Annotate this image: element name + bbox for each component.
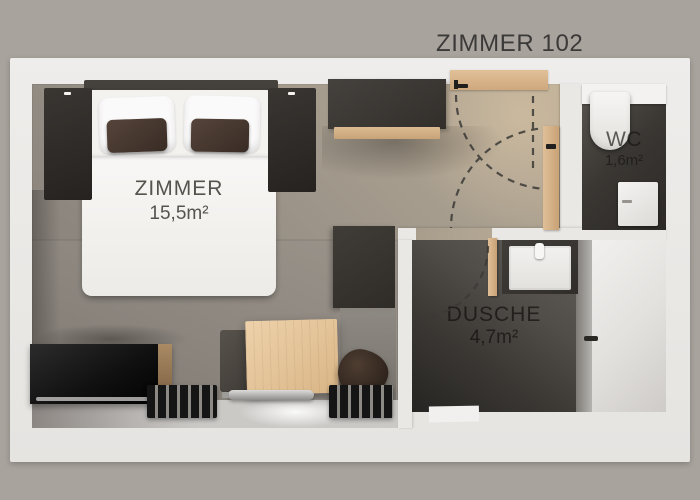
wc-cabinet [618,182,658,226]
door-handle-icon [546,144,556,149]
accent-cushion [106,118,167,153]
wall-shower-left [398,240,412,428]
shower-door-handle [584,336,598,341]
wc-door-panel [543,126,559,230]
nightstand-handle [64,92,71,95]
shower-door-opening [416,228,492,240]
wc-name: WC [582,128,666,152]
nightstand [268,88,316,192]
bedroom-name: ZIMMER [92,176,266,202]
wc-area: 1,6m² [582,152,666,169]
wardrobe-wood-base [334,127,440,139]
shower-tray [592,240,666,412]
faucet-icon [535,243,544,259]
wooden-desk [245,319,339,395]
door-handle-icon [454,84,468,88]
plan-title: ZIMMER 102 [436,30,583,58]
bedroom-area: 15,5m² [92,202,266,226]
bedroom-label: ZIMMER 15,5m² [92,176,266,226]
minibar-cabinet [333,226,395,308]
shower-window [429,406,479,423]
shower-name: DUSCHE [412,302,576,327]
cabinet-handle [622,200,632,203]
wc-room-label: WC 1,6m² [582,128,666,169]
floorplan-page: { "title": "ZIMMER 102", "rooms": { "bed… [0,0,700,500]
radiator-icon [329,385,393,418]
sideboard-base-strip [36,397,156,401]
rail-bracket [222,392,229,398]
wardrobe [328,79,446,129]
nightstand-handle [288,92,295,95]
floorplan: WC 1,6m² DUSCHE 4,7m² ZIMMER 15,5m² [10,58,690,462]
towel-rail [228,390,314,400]
shower-area: 4,7m² [412,327,576,350]
shower-room-label: DUSCHE 4,7m² [412,302,576,350]
shower-door-panel [488,238,497,296]
radiator-icon [147,385,217,418]
shower-glass-partition [576,240,592,412]
accent-cushion [191,118,250,152]
nightstand [44,88,92,200]
wall-corridor-wc [560,84,582,240]
